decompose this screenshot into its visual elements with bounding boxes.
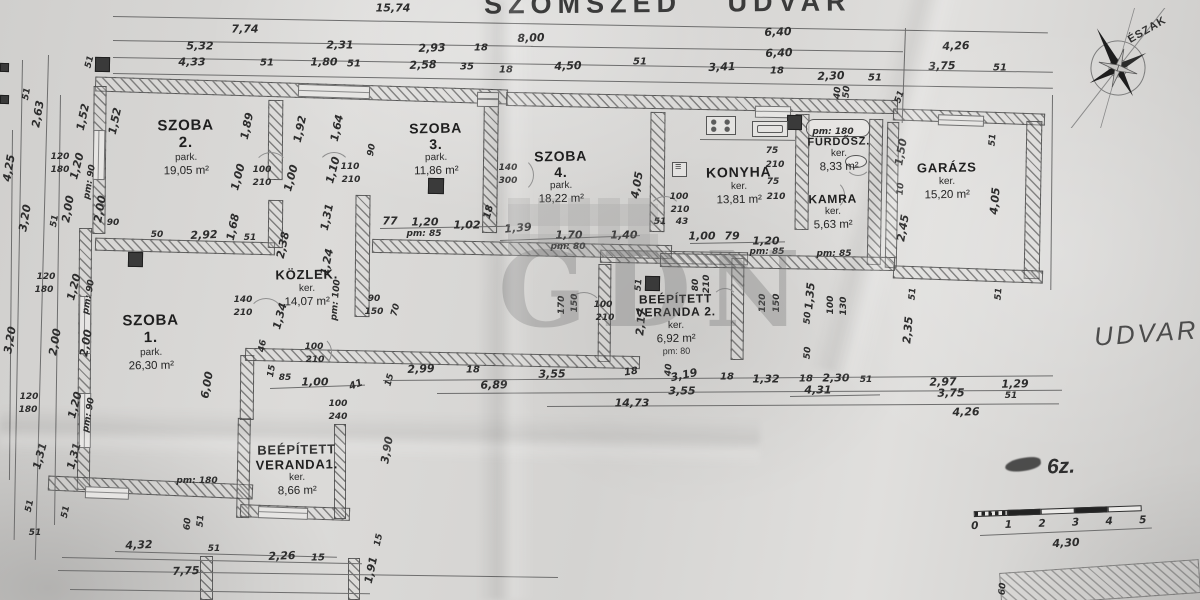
dimension-label: 140 — [234, 295, 253, 305]
room-area: 15,20 m² — [917, 187, 977, 202]
dimension-label: 100 — [329, 399, 348, 409]
dimension-label: 1,52 — [74, 102, 92, 131]
dimension-label: 210 — [596, 313, 615, 323]
dimension-label: 120 — [758, 294, 768, 313]
scale-tick: 0 — [971, 520, 979, 532]
dimension-line — [437, 390, 1062, 394]
dimension-label: 80 — [691, 279, 701, 292]
dimension-label: 300 — [499, 176, 518, 186]
dimension-label: 3,75 — [937, 386, 964, 399]
dimension-label: 15 — [311, 553, 325, 564]
room-area: 14,07 m² — [276, 294, 339, 309]
dimension-label: 4,33 — [178, 56, 205, 69]
dimension-label: 2,92 — [190, 228, 218, 242]
dimension-label: 3,55 — [668, 385, 695, 398]
dimension-label: 2,26 — [268, 549, 296, 563]
dimension-label: 210 — [253, 178, 272, 188]
dimension-label: 51 — [907, 287, 918, 300]
dimension-label: 77 — [382, 215, 397, 228]
dimension-label: 15 — [384, 373, 397, 388]
dimension-label: 18 — [466, 365, 480, 376]
room-name: KÖZLEK. — [275, 267, 338, 283]
chimney-block — [645, 276, 660, 291]
dimension-label: 4,32 — [125, 538, 153, 552]
room-name: VERANDA 2. — [636, 306, 716, 321]
dimension-label: 15,74 — [376, 2, 411, 15]
dimension-label: 51 — [244, 233, 257, 243]
dimension-label: 90 — [107, 218, 120, 228]
dimension-label: 51 — [987, 133, 998, 146]
room-area: 26,30 m² — [123, 358, 180, 373]
dimension-label: 2,63 — [29, 100, 47, 129]
room-name: 3. — [409, 136, 462, 153]
dimension-label: 6,00 — [198, 371, 216, 400]
dimension-label: 1,39 — [504, 220, 532, 235]
dimension-label: 90 — [368, 294, 381, 304]
dimension-label: 51 — [208, 544, 221, 554]
dimension-label: 35 — [460, 62, 474, 73]
dimension-label: 2,00 — [59, 195, 77, 224]
dimension-label: 7,75 — [172, 564, 200, 578]
room-label: SZOBA4.park.18,22 m² — [534, 149, 588, 208]
dimension-label: 180 — [35, 285, 54, 295]
stove-icon — [706, 116, 736, 135]
dimension-label: 2,35 — [900, 316, 915, 344]
room-extra: pm: 80 — [636, 346, 716, 359]
dimension-label: 41 — [348, 377, 365, 392]
dimension-label: 50 — [802, 346, 813, 359]
dimension-label: 90 — [366, 143, 378, 157]
dimension-label: 51 — [654, 217, 667, 227]
dimension-line — [113, 40, 533, 47]
dimension-label: 210 — [671, 205, 690, 215]
dimension-label: 4,50 — [554, 59, 582, 73]
dimension-label: 51 — [993, 287, 1004, 300]
dimension-label: 1,20 — [752, 235, 779, 248]
dimension-label: 51 — [49, 214, 61, 228]
wall-segment — [893, 265, 1043, 283]
room-label: GARÁZSker.15,20 m² — [917, 160, 977, 202]
annotation-number: 6z. — [1047, 455, 1076, 480]
room-type: park. — [123, 346, 180, 359]
room-name: FÜRDŐSZ. — [807, 135, 870, 148]
dimension-label: 1,31 — [318, 202, 336, 231]
dimension-label: 1,92 — [291, 114, 309, 143]
dimension-label: 180 — [19, 405, 38, 415]
dimension-label: 51 — [60, 505, 72, 519]
dimension-line — [1050, 95, 1053, 290]
dimension-label: 1,00 — [228, 162, 248, 192]
room-area: 11,86 m² — [410, 164, 463, 179]
dimension-label: 15 — [266, 364, 278, 378]
dimension-line — [58, 570, 558, 578]
window-symbol — [938, 114, 984, 127]
dimension-label: 1,20 — [67, 151, 87, 181]
room-name: VERANDA1. — [256, 457, 339, 473]
scale-segment — [974, 510, 1008, 517]
dimension-label: 51 — [868, 73, 882, 84]
dimension-label: 10 — [895, 182, 906, 195]
dimension-label: 51 — [29, 528, 42, 538]
room-type: park. — [410, 152, 463, 165]
room-type: ker. — [808, 148, 871, 161]
chimney-block — [428, 178, 444, 194]
room-type: ker. — [809, 206, 858, 219]
dimension-label: 130 — [839, 297, 849, 316]
room-label: SZOBA2.park.19,05 m² — [157, 118, 215, 179]
room-area: 8,33 m² — [808, 160, 871, 175]
dimension-label: 1,68 — [224, 212, 242, 241]
dimension-label: 210 — [234, 308, 253, 318]
wall-segment — [1024, 121, 1043, 279]
dimension-label: pm: 85 — [816, 249, 851, 259]
dimension-label: 1,00 — [688, 230, 715, 243]
dimension-label: 15 — [373, 533, 385, 547]
dimension-label: 1,20 — [411, 216, 438, 229]
dimension-label: 3,90 — [378, 436, 396, 465]
scale-segment — [1108, 505, 1142, 512]
dimension-label: 4,25 — [0, 154, 18, 183]
dimension-label: 1,89 — [238, 111, 256, 140]
room-label: SZOBA1.park.26,30 m² — [122, 313, 180, 374]
dimension-label: 2,31 — [326, 39, 353, 52]
dimension-label: 1,32 — [752, 373, 779, 386]
window-symbol — [85, 486, 129, 500]
dimension-label: 5,32 — [186, 40, 213, 53]
dimension-label: 6,40 — [764, 25, 792, 39]
room-label: KONYHAker.13,81 m² — [706, 164, 772, 207]
room-name: 2. — [158, 134, 215, 152]
dimension-label: 1,91 — [362, 555, 380, 584]
dimension-label: 50 — [151, 230, 164, 240]
dimension-label: 79 — [724, 230, 739, 243]
wall-segment — [48, 476, 253, 500]
dimension-label: 51 — [633, 278, 644, 291]
dimension-label: 120 — [37, 272, 56, 282]
dimension-label: 4,26 — [942, 39, 970, 53]
dimension-label: 150 — [772, 294, 782, 313]
dimension-label: 3,55 — [538, 367, 565, 380]
dimension-label: 210 — [342, 175, 361, 185]
dimension-label: 4,26 — [952, 405, 979, 418]
dimension-label: 75 — [766, 146, 779, 156]
dimension-label: 1,64 — [328, 113, 346, 142]
room-name: KONYHA — [706, 164, 772, 181]
room-name: SZOBA — [122, 313, 179, 331]
dimension-label: 14,73 — [615, 397, 650, 410]
dimension-label: 100 — [670, 192, 689, 202]
dimension-line — [531, 46, 903, 52]
window-symbol — [477, 92, 499, 107]
dimension-label: 1,35 — [802, 282, 817, 310]
dimension-label: 18 — [623, 366, 638, 379]
dimension-label: 4,31 — [804, 384, 831, 397]
chimney-block — [787, 115, 802, 130]
dimension-label: 51 — [347, 59, 361, 70]
dimension-label: 18 — [720, 372, 734, 383]
dimension-label: 100 — [253, 165, 272, 175]
room-label: KÖZLEK.ker.14,07 m² — [275, 267, 338, 309]
scale-tick: 2 — [1038, 518, 1046, 530]
dimension-label: 4,05 — [987, 187, 1002, 215]
dimension-label: 150 — [570, 294, 580, 313]
door-swing-arc — [712, 288, 738, 314]
dimension-label: 51 — [860, 375, 873, 385]
room-label: KAMRAker.5,63 m² — [808, 193, 857, 234]
room-area: 6,92 m² — [636, 331, 716, 347]
sink-icon — [752, 121, 788, 137]
dimension-label: 18 — [499, 65, 513, 76]
dimension-label: 51 — [260, 58, 274, 69]
dimension-label: 1,31 — [30, 441, 50, 471]
room-area: 5,63 m² — [809, 218, 858, 233]
scale-tick: 3 — [1072, 516, 1080, 528]
room-label: BEÉPÍTETTVERANDA1.ker.8,66 m² — [255, 442, 338, 499]
dimension-label: 2,58 — [409, 58, 437, 72]
dimension-label: 1,02 — [453, 219, 480, 232]
dimension-label: 7,74 — [231, 23, 258, 36]
chimney-block — [0, 63, 9, 72]
dimension-label: 1,70 — [555, 229, 582, 242]
dimension-line — [113, 57, 1053, 73]
scale-tick: 5 — [1139, 514, 1147, 526]
chimney-block — [95, 57, 110, 72]
dimension-label: 120 — [20, 392, 39, 402]
dimension-label: pm: 85 — [749, 247, 784, 257]
dimension-label: 110 — [341, 162, 360, 172]
scale-tick: 4 — [1105, 515, 1113, 527]
wall-segment — [200, 556, 213, 600]
dimension-label: 1,52 — [106, 106, 124, 135]
dimension-label: 85 — [279, 373, 292, 383]
room-name: SZOBA — [409, 121, 462, 138]
room-type: park. — [535, 180, 588, 193]
dimension-label: 2,00 — [46, 328, 64, 357]
room-name: GARÁZS — [917, 160, 977, 176]
wall-segment — [240, 355, 255, 420]
dimension-label: 18 — [770, 66, 784, 77]
dimension-label: 1,29 — [1001, 377, 1028, 390]
room-name: KAMRA — [808, 193, 857, 207]
dimension-line — [70, 589, 370, 594]
dimension-label: 2,93 — [418, 41, 446, 55]
dimension-label: 1,80 — [310, 56, 337, 69]
dimension-label: 150 — [365, 307, 384, 317]
dimension-label: 60 — [182, 517, 193, 530]
wall-segment — [372, 239, 672, 259]
dimension-line — [115, 551, 337, 558]
dimension-label: 2,30 — [817, 69, 845, 83]
dimension-label: 2,99 — [407, 362, 435, 376]
room-type: ker. — [917, 175, 977, 188]
scale-segment — [1041, 508, 1075, 515]
dimension-label: 4,30 — [1052, 536, 1080, 550]
room-area: 8,66 m² — [256, 483, 339, 499]
window-symbol — [258, 506, 308, 520]
dimension-label: pm: 80 — [550, 242, 585, 252]
room-area: 13,81 m² — [706, 192, 772, 208]
scale-tick: 1 — [1005, 519, 1013, 531]
dimension-label: 51 — [24, 499, 36, 513]
dimension-line — [14, 60, 24, 540]
wall-segment — [236, 418, 251, 518]
chimney-block — [128, 252, 143, 267]
dimension-label: 46 — [257, 339, 269, 353]
dimension-label: 50 — [841, 85, 852, 98]
dimension-label: 120 — [51, 152, 70, 162]
dimension-label: 180 — [51, 165, 70, 175]
dimension-label: 6,40 — [765, 46, 793, 60]
floor-plan-scan: 15,747,748,006,406,405,322,312,93184,505… — [0, 0, 1200, 600]
room-area: 19,05 m² — [158, 163, 215, 178]
dimension-label: 43 — [676, 217, 689, 227]
window-symbol — [755, 106, 791, 119]
dimension-label: 18 — [474, 43, 488, 54]
dimension-label: 210 — [306, 355, 325, 365]
dimension-label: 51 — [21, 87, 33, 101]
dimension-label: 1,00 — [301, 376, 328, 389]
dimension-label: 240 — [329, 412, 348, 422]
window-symbol — [298, 84, 370, 99]
dimension-label: 70 — [390, 303, 403, 318]
room-name: SZOBA — [157, 118, 214, 136]
dimension-label: 60 — [997, 582, 1008, 595]
dimension-label: 1,40 — [610, 229, 637, 242]
dimension-label: 140 — [499, 163, 518, 173]
room-label: FÜRDŐSZ.ker.8,33 m² — [807, 135, 870, 175]
dimension-label: 50 — [802, 311, 813, 324]
room-type: park. — [158, 151, 215, 164]
dimension-label: 51 — [633, 57, 647, 68]
chimney-block — [0, 95, 9, 104]
dimension-label: 170 — [557, 296, 567, 315]
wall-segment — [999, 559, 1200, 600]
dimension-label: 51 — [993, 63, 1007, 74]
boiler-icon — [672, 162, 687, 177]
dimension-label: 100 — [305, 342, 324, 352]
room-label: SZOBA3.park.11,86 m² — [409, 121, 463, 180]
room-name: 1. — [123, 329, 180, 347]
dimension-label: 100 — [826, 296, 836, 315]
dimension-label: 8,00 — [517, 31, 545, 45]
room-type: ker. — [276, 282, 339, 295]
room-area: 18,22 m² — [535, 192, 588, 207]
room-label: BEÉPÍTETTVERANDA 2.ker.6,92 m²pm: 80 — [635, 292, 716, 358]
dimension-label: 51 — [1005, 391, 1018, 401]
dimension-label: 3,75 — [928, 59, 956, 73]
dimension-label: pm: 180 — [176, 476, 217, 486]
dimension-label: 3,41 — [708, 60, 736, 74]
dimension-label: 51 — [195, 514, 206, 527]
dimension-label: 4,05 — [628, 171, 646, 200]
room-name: SZOBA — [534, 149, 587, 166]
scale-segment — [1007, 509, 1041, 516]
scale-segment — [1074, 506, 1108, 513]
dimension-label: 6,89 — [480, 378, 507, 391]
dimension-label: pm: 85 — [406, 229, 441, 239]
room-name: 4. — [534, 164, 587, 181]
dimension-label: 100 — [594, 300, 613, 310]
dimension-line — [700, 139, 795, 141]
neighbor-yard-title: SZOMSZÉD UDVAR — [484, 0, 852, 21]
